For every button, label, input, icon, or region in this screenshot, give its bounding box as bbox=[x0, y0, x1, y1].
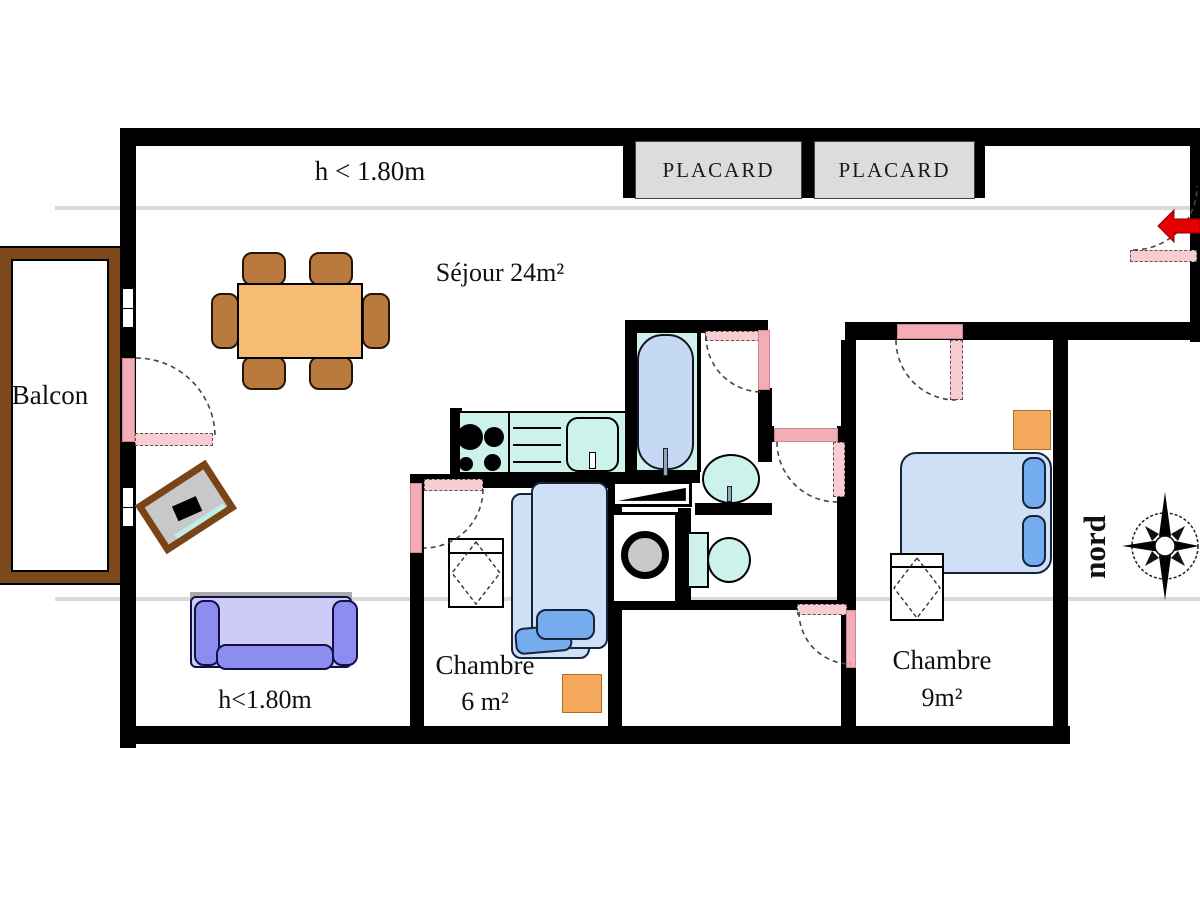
height-note-bottom: h<1.80m bbox=[200, 685, 330, 715]
dresser-diamond bbox=[452, 542, 500, 604]
door-swing-arc bbox=[424, 489, 483, 548]
bedroom-large-area: 9m² bbox=[876, 683, 1008, 713]
door-swing-arc bbox=[777, 442, 837, 502]
height-note-top: h < 1.80m bbox=[280, 156, 460, 187]
living-room-label: Séjour 24m² bbox=[410, 258, 590, 288]
bedroom-small-area: 6 m² bbox=[420, 687, 550, 717]
door-swing-arc bbox=[799, 612, 851, 664]
compass-rose-icon bbox=[1122, 492, 1199, 600]
entry-arrow-icon bbox=[1158, 210, 1200, 242]
compass-label: nord bbox=[1077, 497, 1111, 597]
bedroom-small-label: Chambre bbox=[420, 650, 550, 681]
door-swing-arc bbox=[896, 340, 956, 400]
plan-overlay bbox=[0, 0, 1200, 900]
dresser-diamond bbox=[894, 558, 940, 618]
floor-plan: PLACARD PLACARD bbox=[0, 0, 1200, 900]
balcony-label: Balcon bbox=[4, 380, 96, 411]
door-swing-arc bbox=[136, 358, 215, 437]
bedroom-large-label: Chambre bbox=[876, 645, 1008, 676]
door-swing-arc bbox=[706, 336, 762, 392]
door-swing-arc bbox=[1133, 186, 1197, 250]
